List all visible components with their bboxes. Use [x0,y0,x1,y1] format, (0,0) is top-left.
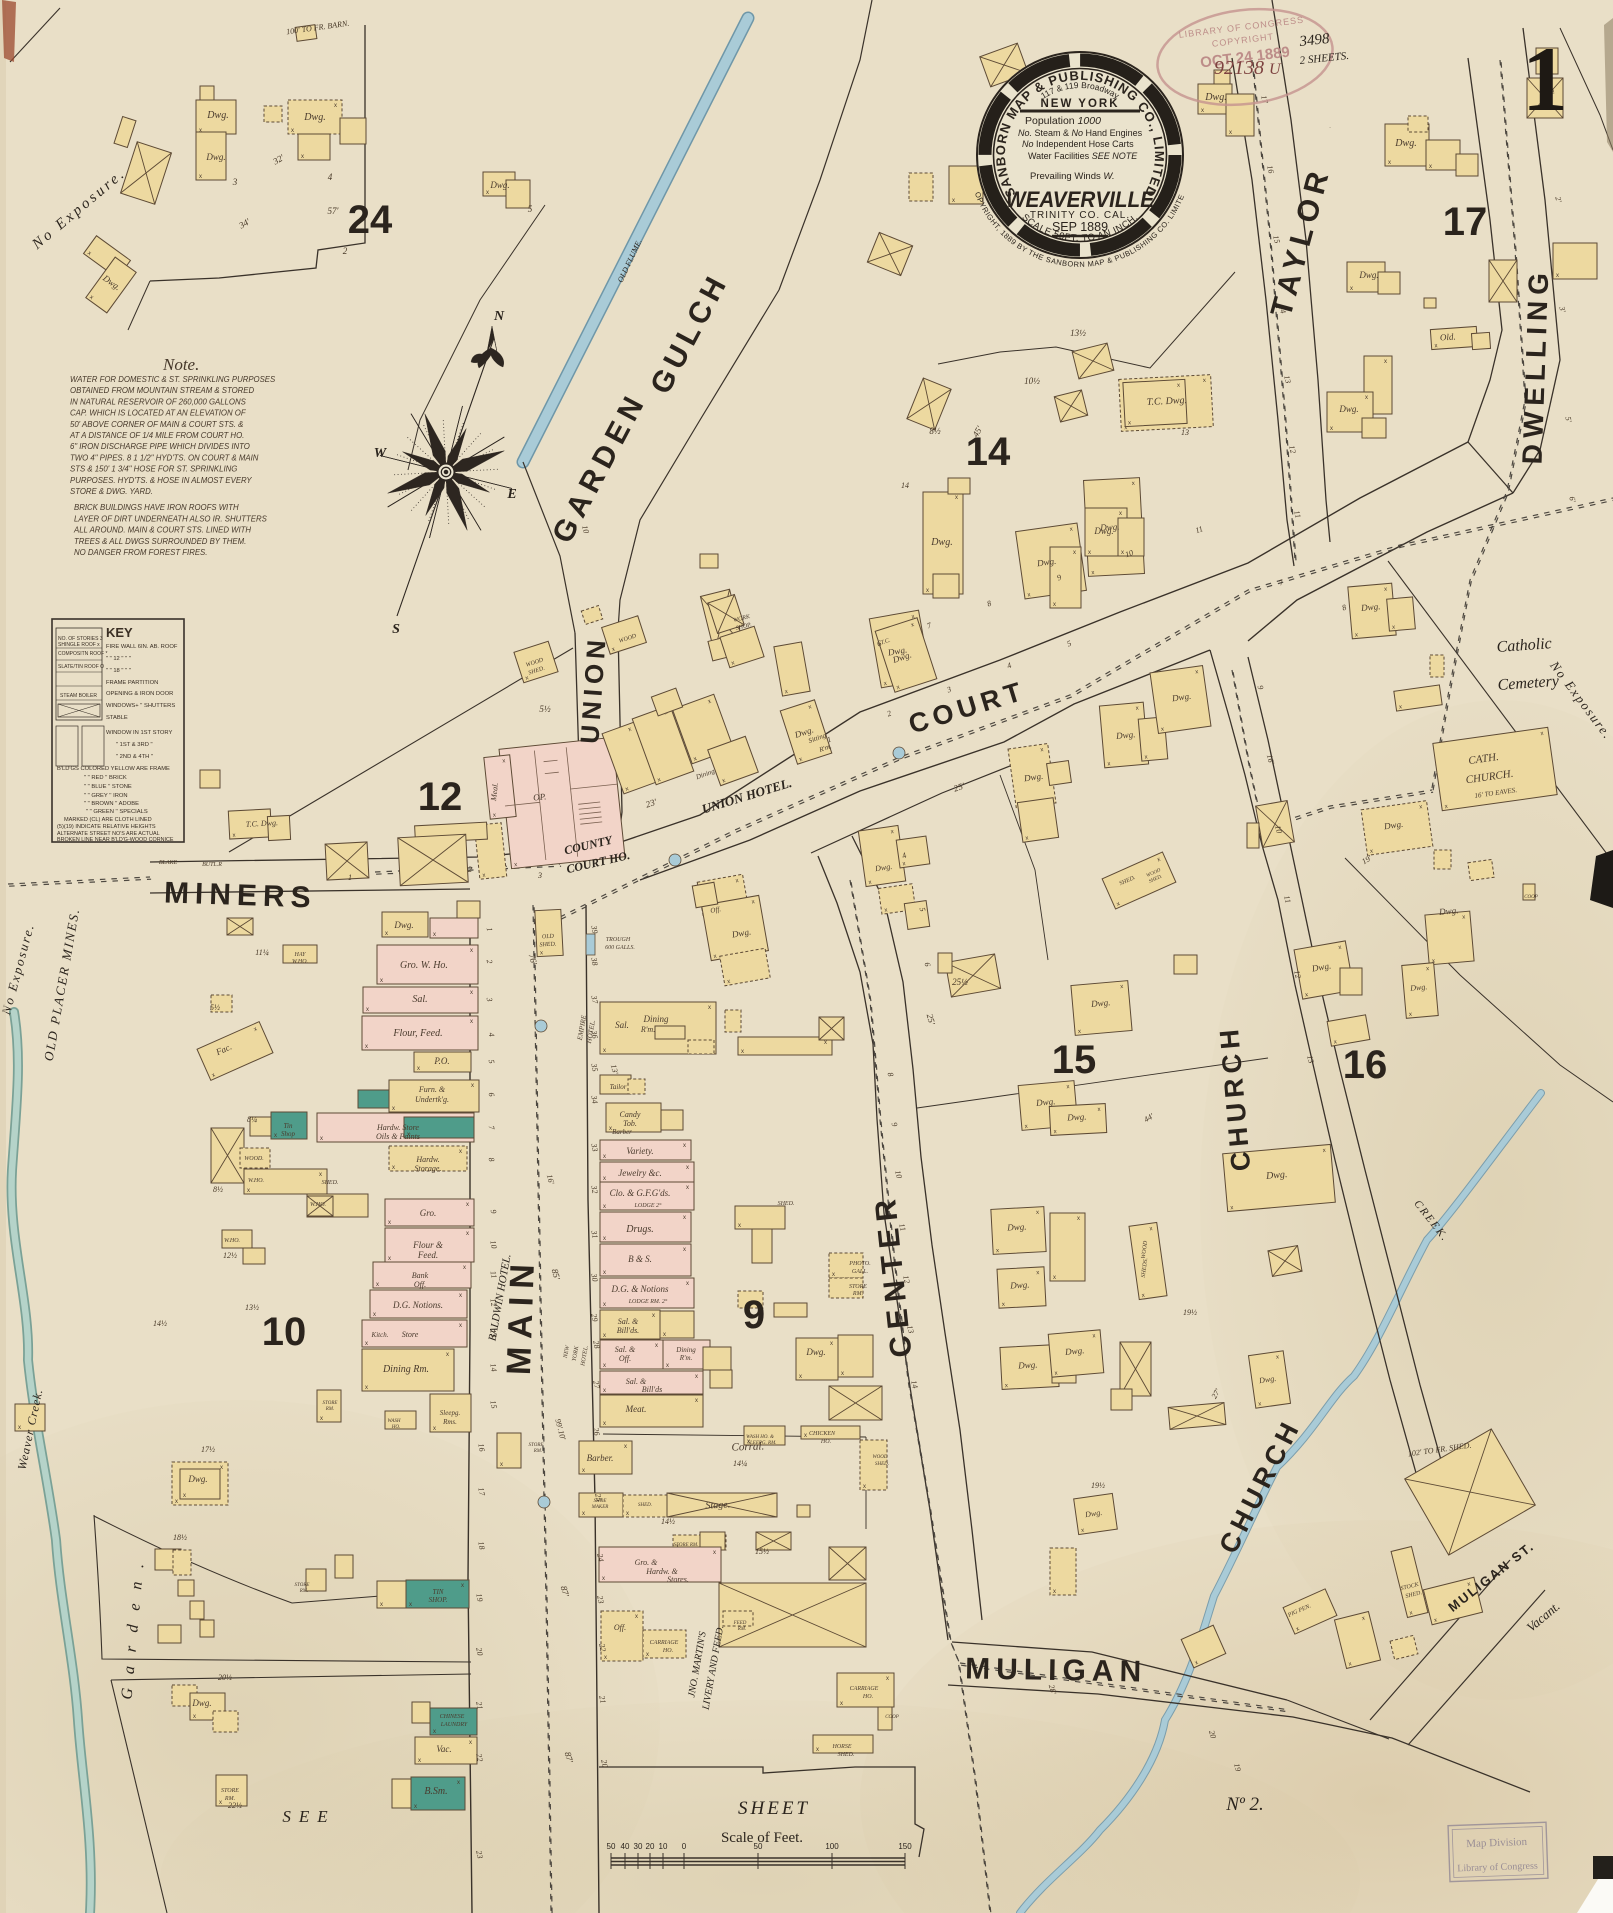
svg-text:D.G. & Notions: D.G. & Notions [610,1284,669,1294]
svg-text:x: x [886,1676,889,1682]
svg-text:E: E [506,487,516,502]
svg-text:x: x [1434,343,1437,349]
svg-text:x: x [1091,570,1094,576]
svg-text:HORSE: HORSE [832,1744,852,1750]
svg-text:x: x [741,1049,744,1055]
svg-text:5½: 5½ [210,1003,220,1012]
svg-text:T.C. Dwg.: T.C. Dwg. [245,818,278,829]
svg-text:SHED.: SHED. [778,1201,795,1207]
svg-text:BLAKE: BLAKE [159,860,178,866]
svg-text:Bank: Bank [412,1271,429,1280]
svg-text:SHED.: SHED. [539,942,556,949]
svg-text:SHED.: SHED. [875,1462,889,1467]
svg-text:x: x [1330,426,1333,432]
svg-text:Dwg.: Dwg. [930,537,952,548]
svg-text:Dining: Dining [675,1346,696,1354]
svg-text:CHINESE: CHINESE [440,1714,465,1720]
svg-text:x: x [1073,550,1076,556]
svg-text:8¼: 8¼ [247,1115,257,1124]
svg-text:x: x [1119,511,1122,517]
svg-text:x: x [486,190,489,196]
svg-text:x: x [996,1248,999,1254]
svg-text:13½: 13½ [1070,328,1086,338]
svg-text:10: 10 [262,1310,307,1354]
svg-text:Sal. &: Sal. & [615,1345,636,1354]
svg-text:Variety.: Variety. [626,1146,653,1156]
svg-text:D.G. Notions.: D.G. Notions. [392,1300,443,1310]
svg-text:x: x [291,128,294,134]
svg-text:STABLE: STABLE [106,715,128,721]
svg-text:0: 0 [682,1842,687,1851]
svg-text:x: x [1066,1084,1070,1090]
svg-text:x: x [582,1468,585,1474]
svg-text:x: x [385,931,388,937]
svg-text:B'LD'GS COLORED YELLOW ARE FRA: B'LD'GS COLORED YELLOW ARE FRAME [57,766,170,772]
svg-text:Kitch.: Kitch. [371,1331,389,1339]
svg-text:Hardw. Store: Hardw. Store [376,1123,419,1132]
svg-text:LAYER OF DIRT UNDERNEATH ALSO: LAYER OF DIRT UNDERNEATH ALSO IR. SHUTTE… [74,514,268,523]
svg-text:40: 40 [621,1842,630,1851]
svg-text:x: x [816,1747,819,1753]
svg-text:x: x [414,1804,417,1810]
svg-text:R'm.: R'm. [679,1354,693,1362]
svg-text:STORE: STORE [221,1788,239,1794]
svg-text:x: x [320,1136,323,1142]
svg-text:Dwg.: Dwg. [1394,138,1416,149]
svg-text:STORE: STORE [529,1443,544,1448]
svg-text:x: x [603,1363,606,1369]
svg-text:x: x [1201,108,1204,114]
svg-text:x: x [926,588,929,594]
svg-text:x: x [493,813,497,819]
svg-text:B & S.: B & S. [628,1254,652,1264]
svg-text:x: x [603,1154,606,1160]
svg-text:x: x [1036,1270,1039,1276]
svg-text:24: 24 [595,1553,605,1562]
svg-text:RM.: RM. [299,1589,308,1594]
svg-text:21: 21 [474,1701,484,1710]
svg-text:x: x [502,758,506,764]
svg-text:19: 19 [474,1593,484,1602]
svg-text:" " RED '' BRICK: " " RED '' BRICK [84,775,127,781]
svg-text:x: x [1230,1205,1234,1211]
svg-text:x: x [1088,550,1091,556]
svg-text:x: x [1036,1210,1039,1216]
svg-text:x: x [470,990,473,996]
svg-text:x: x [1053,602,1056,608]
svg-text:OLD: OLD [542,934,555,941]
svg-text:Flour &: Flour & [412,1240,443,1250]
svg-text:N: N [493,309,505,324]
svg-text:34: 34 [589,1094,599,1104]
svg-text:5½: 5½ [539,704,551,714]
svg-text:Sleepg.: Sleepg. [440,1409,461,1417]
svg-text:Off.: Off. [619,1354,631,1363]
svg-text:Population 1000: Population 1000 [1025,115,1101,127]
svg-text:RM.: RM. [737,1627,746,1632]
svg-text:PHOTO.: PHOTO. [848,1261,870,1267]
svg-text:WOOD: WOOD [873,1455,888,1460]
svg-text:Tin: Tin [284,1122,293,1130]
svg-text:x: x [603,1176,606,1182]
svg-text:x: x [652,1313,655,1319]
svg-text:SHINGLE ROOF x: SHINGLE ROOF x [58,642,100,648]
svg-text:Dwg.: Dwg. [1064,1345,1085,1357]
svg-text:Dwg.: Dwg. [1115,729,1136,741]
svg-text:36: 36 [589,1029,599,1039]
svg-text:x: x [804,1433,807,1439]
svg-text:" " BLUE '' STONE: " " BLUE '' STONE [84,784,132,790]
svg-text:Dwg.: Dwg. [393,920,413,930]
svg-text:x: x [365,1044,368,1050]
svg-text:19½: 19½ [1183,1308,1197,1317]
svg-text:Stores.: Stores. [667,1575,689,1584]
svg-text:22: 22 [474,1753,484,1762]
svg-text:15: 15 [1052,1038,1097,1082]
svg-text:x: x [433,932,436,938]
svg-text:16: 16 [1343,1043,1388,1087]
svg-text:ALL AROUND. MAIN & COURT STS.: ALL AROUND. MAIN & COURT STS. LINED WITH [73,526,251,535]
svg-text:x: x [1077,1216,1080,1222]
svg-text:WINDOW IN 1ST STORY: WINDOW IN 1ST STORY [106,730,172,736]
svg-text:8½: 8½ [929,426,941,436]
svg-text:x: x [1409,1012,1413,1018]
svg-text:17½: 17½ [201,1445,215,1454]
svg-text:Dwg.: Dwg. [1035,1096,1056,1108]
svg-text:x: x [380,978,383,984]
svg-text:Dwg.: Dwg. [1009,1280,1030,1291]
svg-text:31: 31 [589,1229,599,1239]
svg-text:x: x [366,1007,369,1013]
svg-text:RM.: RM. [852,1291,863,1297]
svg-text:Undertk'g.: Undertk'g. [415,1095,449,1104]
svg-text:CARRIAGE: CARRIAGE [850,1686,879,1692]
svg-text:x: x [686,1185,689,1191]
svg-text:x: x [603,1204,606,1210]
svg-text:HAY: HAY [293,952,306,958]
svg-text:Off.: Off. [614,1623,626,1632]
svg-text:x: x [603,1333,606,1339]
svg-text:W: W [374,446,388,461]
svg-text:x: x [655,1343,658,1349]
svg-text:BRICK BUILDINGS HAVE IRON ROOF: BRICK BUILDINGS HAVE IRON ROOFS WITH [74,503,239,512]
svg-text:x: x [695,1398,698,1404]
svg-text:12½: 12½ [223,1251,237,1260]
svg-text:Storage.: Storage. [415,1164,442,1173]
svg-text:14: 14 [488,1363,498,1372]
svg-text:x: x [1092,1333,1096,1339]
svg-text:WEAVERVILLE: WEAVERVILLE [1006,187,1155,212]
svg-text:PURPOSES. HYD'TS. & HOSE IN A: PURPOSES. HYD'TS. & HOSE IN ALMOST EVERY [70,476,252,485]
svg-text:W.HO.: W.HO. [248,1178,264,1184]
svg-text:HO.: HO. [820,1439,831,1445]
svg-text:33: 33 [589,1142,599,1152]
svg-text:Shop: Shop [281,1130,296,1138]
svg-text:AT A DISTANCE OF 1/4 MILE FROM: AT A DISTANCE OF 1/4 MILE FROM COURT HO. [69,431,244,440]
svg-text:S: S [392,622,400,637]
svg-text:STEAM BOILER: STEAM BOILER [60,693,97,699]
svg-text:x: x [604,1655,607,1661]
svg-text:x: x [830,1341,833,1347]
svg-text:KEY: KEY [106,625,133,640]
svg-text:x: x [459,1293,462,1299]
svg-text:IN NATURAL RESERVOIR OF 260,00: IN NATURAL RESERVOIR OF 260,000 GALLONS [70,397,247,406]
svg-text:x: x [461,1583,464,1589]
svg-text:x: x [219,1800,222,1806]
svg-text:50' ABOVE CORNER OF MAIN & COU: 50' ABOVE CORNER OF MAIN & COURT STS. & [70,420,243,429]
svg-text:x: x [683,1215,686,1221]
svg-text:12: 12 [418,775,463,819]
svg-text:x: x [624,1444,627,1450]
svg-text:STORE: STORE [849,1284,867,1290]
svg-text:x: x [1097,1107,1100,1113]
svg-text:x: x [392,1106,395,1112]
svg-text:x: x [1556,273,1559,279]
svg-text:18: 18 [476,1541,486,1550]
svg-text:Barber.: Barber. [587,1453,614,1463]
svg-text:W.HO.: W.HO. [292,959,308,965]
svg-text:HO.: HO. [391,1425,400,1430]
svg-text:WOOD.: WOOD. [244,1156,264,1162]
svg-text:x: x [832,1272,835,1278]
svg-text:x: x [603,1421,606,1427]
svg-text:92138 U: 92138 U [1214,57,1282,79]
svg-text:SLEEPG. RM.: SLEEPG. RM. [747,1441,776,1446]
svg-text:2: 2 [343,246,348,256]
svg-text:Barber: Barber [612,1128,632,1136]
svg-text:STORE: STORE [295,1583,310,1588]
svg-text:CHICKEN: CHICKEN [809,1431,836,1437]
svg-text:SHOP.: SHOP. [429,1596,448,1604]
svg-text:Dwg.: Dwg. [1265,1169,1288,1182]
svg-text:GALL.: GALL. [852,1269,868,1275]
svg-text:Sal.: Sal. [615,1020,629,1030]
svg-text:x: x [1429,164,1432,170]
svg-text:x: x [603,1236,606,1242]
svg-text:x: x [635,1614,638,1620]
svg-text:Dwg.: Dwg. [206,110,228,121]
svg-text:OP.: OP. [533,791,547,802]
svg-text:MARKED (CL) ARE CLOTH LINED: MARKED (CL) ARE CLOTH LINED [64,817,152,823]
svg-text:57′: 57′ [328,206,340,216]
svg-text:x: x [582,1511,585,1517]
svg-text:x: x [799,1374,802,1380]
svg-text:20: 20 [474,1647,484,1656]
svg-text:x: x [1053,1275,1056,1281]
svg-text:W.HO.: W.HO. [310,1202,326,1208]
svg-text:Gro. W. Ho.: Gro. W. Ho. [400,960,448,971]
svg-text:COOP: COOP [885,1715,899,1720]
svg-text:COOP: COOP [1524,895,1538,900]
svg-text:Jewelry &c.: Jewelry &c. [618,1168,661,1178]
svg-text:Hardw.: Hardw. [415,1155,439,1164]
svg-text:WATER FOR DOMESTIC & ST. SPRIN: WATER FOR DOMESTIC & ST. SPRINKLING PURP… [70,375,276,384]
svg-text:Dwg.: Dwg. [191,1698,211,1708]
svg-text:x: x [175,1499,178,1505]
svg-text:Dwg.: Dwg. [1090,997,1111,1009]
svg-text:23: 23 [474,1850,484,1859]
svg-text:x: x [193,1714,196,1720]
svg-text:10: 10 [659,1842,668,1851]
svg-text:x: x [274,1133,277,1139]
svg-text:30: 30 [634,1842,643,1851]
svg-text:Bill'ds: Bill'ds [642,1385,662,1394]
svg-text:8½: 8½ [213,1185,223,1194]
svg-text:1: 1 [348,873,352,882]
svg-text:14½: 14½ [661,1517,675,1526]
svg-text:3: 3 [537,871,542,880]
svg-text:SEE: SEE [282,1807,335,1826]
svg-text:100: 100 [825,1842,839,1851]
svg-text:x: x [433,1426,436,1432]
svg-text:WINDOWS+ " SHUTTERS: WINDOWS+ " SHUTTERS [106,703,175,709]
svg-text:Dwg.: Dwg. [1409,982,1428,993]
svg-text:HO.: HO. [662,1648,673,1654]
svg-text:x: x [863,1484,866,1490]
svg-text:Tailor: Tailor [610,1083,627,1091]
svg-text:1: 1 [1522,28,1568,130]
svg-text:OBTAINED FROM MOUNTAIN STREAM: OBTAINED FROM MOUNTAIN STREAM & STORED [70,386,254,395]
svg-text:28: 28 [591,1340,601,1349]
svg-text:x: x [380,1602,383,1608]
svg-text:x: x [392,1165,395,1171]
svg-text:23: 23 [595,1595,605,1604]
svg-text:x: x [463,1265,466,1271]
svg-text:19½: 19½ [1091,1481,1105,1490]
svg-text:x: x [1229,130,1232,136]
svg-text:30: 30 [589,1272,599,1282]
svg-text:3: 3 [232,177,238,187]
svg-text:x: x [471,1083,474,1089]
svg-text:22½: 22½ [228,1801,242,1810]
svg-text:x: x [446,1352,449,1358]
svg-text:18½: 18½ [173,1533,187,1542]
svg-text:x: x [1136,706,1140,712]
svg-text:x: x [459,1323,462,1329]
svg-text:HO.: HO. [862,1694,873,1700]
svg-text:25½: 25½ [952,977,968,987]
svg-text:Sal.: Sal. [412,994,427,1005]
svg-text:x: x [1053,1589,1056,1595]
svg-text:3498: 3498 [1298,31,1331,50]
svg-text:Note.: Note. [162,355,199,374]
svg-text:x: x [686,1281,689,1287]
svg-text:x: x [1053,1129,1056,1135]
svg-text:x: x [199,174,202,180]
svg-text:10½: 10½ [1024,376,1040,386]
svg-text:MINERS: MINERS [163,876,317,914]
svg-text:x: x [470,948,473,954]
svg-text:Meat.: Meat. [625,1404,647,1414]
svg-text:Off.: Off. [414,1280,426,1289]
svg-text:x: x [1350,286,1353,292]
svg-text:x: x [482,873,486,879]
svg-text:Drugs.: Drugs. [625,1224,654,1235]
svg-text:Dwg.: Dwg. [1358,270,1378,280]
svg-text:15: 15 [488,1400,498,1409]
svg-text:MAKER: MAKER [591,1505,609,1510]
svg-text:" " BROWN '' ADOBE: " " BROWN '' ADOBE [84,801,139,807]
svg-text:Dining Rm.: Dining Rm. [382,1364,429,1375]
svg-text:Tob.: Tob. [623,1119,637,1128]
svg-text:x: x [418,1758,421,1764]
svg-text:x: x [183,1493,186,1499]
svg-text:x: x [1107,761,1111,767]
svg-text:Vac.: Vac. [436,1744,451,1754]
svg-text:20: 20 [599,1759,609,1768]
svg-text:22: 22 [597,1643,607,1652]
svg-text:Flour, Feed.: Flour, Feed. [392,1028,442,1039]
svg-text:BROKEN LINE NEAR B'LD'G-WOOD C: BROKEN LINE NEAR B'LD'G-WOOD CORNICE [57,837,174,843]
svg-text:10: 10 [488,1240,498,1249]
svg-text:x: x [1144,755,1148,761]
svg-text:x: x [646,1652,649,1658]
svg-text:14: 14 [901,481,909,490]
svg-text:x: x [603,1388,606,1394]
svg-text:x: x [603,1302,606,1308]
svg-text:25: 25 [593,1493,603,1502]
svg-text:13½: 13½ [245,1303,259,1312]
svg-text:TREES & ALL DWGS SURROUNDED: TREES & ALL DWGS SURROUNDED BY THEM. [74,537,246,546]
svg-text:STORE & DWG. YARD.: STORE & DWG. YARD. [70,487,153,496]
svg-text:x: x [457,1780,460,1786]
svg-text:x: x [1203,378,1206,384]
svg-text:x: x [695,1374,698,1380]
svg-text:17: 17 [1443,200,1488,244]
svg-text:x: x [1177,383,1180,389]
svg-text:Dwg.: Dwg. [1204,92,1226,103]
svg-text:x: x [409,1602,412,1608]
svg-text:x: x [1426,966,1430,972]
svg-text:x: x [1025,1124,1029,1130]
svg-text:Dwg.: Dwg. [1093,526,1113,536]
svg-text:24: 24 [348,198,393,242]
svg-text:P.O.: P.O. [433,1056,449,1066]
svg-text:x: x [1120,984,1124,990]
svg-text:R'm.: R'm. [640,1025,655,1034]
svg-text:x: x [470,1019,473,1025]
svg-text:T.C. Dwg.: T.C. Dwg. [1146,395,1187,408]
svg-text:35: 35 [589,1062,599,1072]
svg-text:Candy: Candy [620,1110,641,1119]
svg-text:4: 4 [328,172,333,182]
svg-text:26: 26 [591,1427,601,1436]
svg-text:B.Sm.: B.Sm. [424,1786,447,1797]
svg-text:OPENING & IRON DOOR: OPENING & IRON DOOR [106,691,173,697]
svg-text:" " GREEN '' SPECIALS: " " GREEN '' SPECIALS [86,809,148,815]
svg-text:x: x [388,1256,391,1262]
svg-text:SHEET: SHEET [738,1798,810,1819]
svg-text:TROUGH: TROUGH [606,937,631,943]
svg-text:CARRIAGE: CARRIAGE [650,1640,679,1646]
svg-text:x: x [319,1172,322,1178]
svg-text:No Independent Hose Carts: No Independent Hose Carts [1022,139,1134,149]
svg-text:Dwg.: Dwg. [187,1474,207,1484]
svg-text:No. Steam & No Hand Engines: No. Steam & No Hand Engines [1018,128,1143,138]
svg-text:Dining: Dining [642,1014,669,1024]
svg-text:20½: 20½ [218,1673,232,1682]
svg-text:x: x [232,833,235,839]
svg-text:NEW YORK: NEW YORK [1040,98,1119,110]
svg-text:x: x [376,1282,379,1288]
svg-text:RM.: RM. [533,1449,542,1454]
svg-text:Dwg.: Dwg. [303,112,325,123]
svg-text:20: 20 [646,1842,655,1851]
svg-text:x: x [1128,420,1131,426]
svg-text:x: x [1005,1383,1008,1389]
svg-text:x: x [466,1231,469,1237]
svg-text:x: x [603,1270,606,1276]
